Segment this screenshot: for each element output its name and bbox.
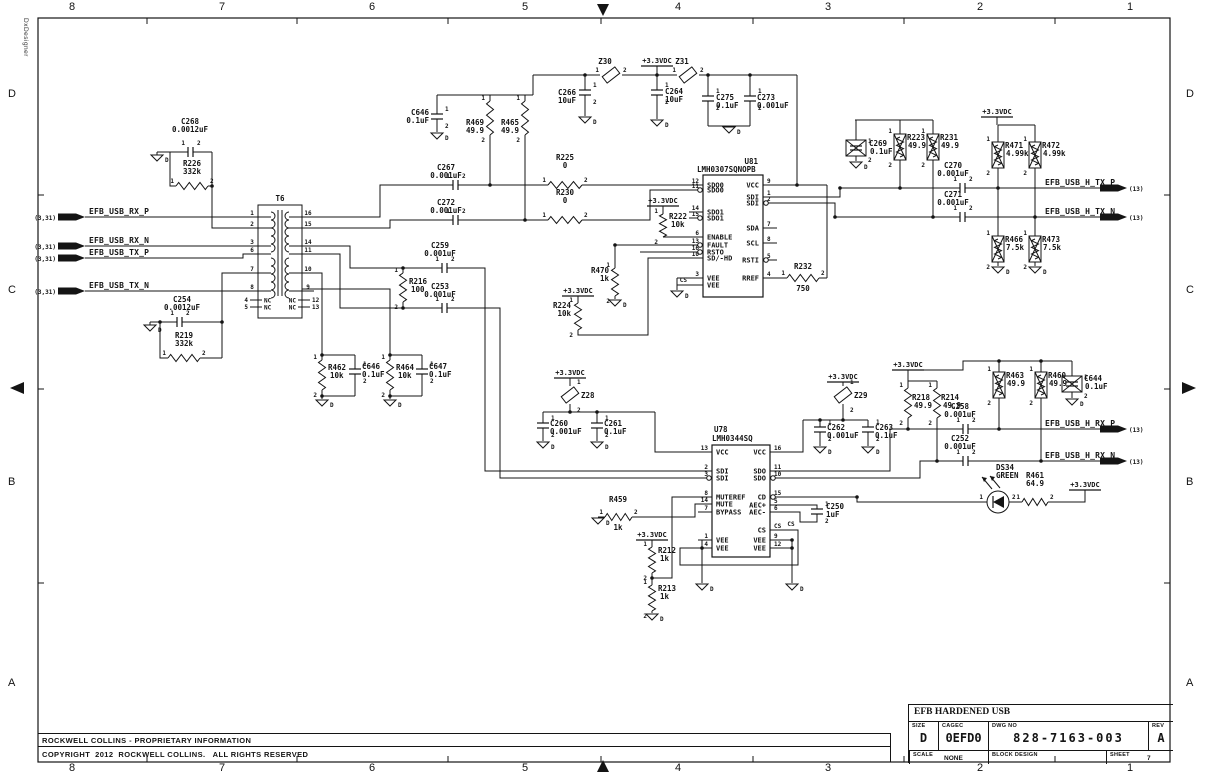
resistor-symbol bbox=[522, 101, 529, 135]
component-value: 0.1uF bbox=[870, 147, 893, 156]
port-sheet-ref: (3,31) bbox=[34, 244, 56, 251]
component-value: 4.99k bbox=[1006, 149, 1029, 158]
pin-marker: 1 bbox=[170, 310, 174, 317]
ground-icon bbox=[723, 127, 735, 133]
pin-marker: 1 bbox=[665, 82, 669, 89]
zone-label: 6 bbox=[369, 1, 375, 13]
ic-pin-number: 10 bbox=[774, 471, 782, 478]
component-value: 0.0012uF bbox=[172, 125, 209, 134]
resistor-symbol bbox=[548, 217, 582, 224]
ground-label: D bbox=[800, 586, 804, 593]
pin-marker: 2 bbox=[928, 420, 932, 427]
component-value: 332k bbox=[183, 167, 202, 176]
ic-pin-number: 5 bbox=[774, 498, 778, 505]
pin-marker: 2 bbox=[700, 67, 704, 74]
junction-dot bbox=[1039, 359, 1043, 363]
ground-icon bbox=[671, 291, 683, 297]
dwg-no-label: DWG NO bbox=[992, 723, 1017, 729]
ic-pin-number: 9 bbox=[767, 178, 771, 185]
pin-marker: 2 bbox=[969, 205, 973, 212]
ic-pin-name: ENABLE bbox=[707, 234, 732, 242]
ic-pin-number: 3 bbox=[704, 471, 708, 478]
cage-label: CAGEC bbox=[942, 723, 963, 729]
ic-pin-name: SDA bbox=[746, 225, 759, 233]
ground-label: D bbox=[605, 444, 609, 451]
component-value: 49.9 bbox=[1049, 379, 1068, 388]
transformer-pin-number: 4 bbox=[244, 297, 248, 304]
zone-label: B bbox=[8, 476, 15, 488]
pin-marker: 2 bbox=[605, 432, 609, 439]
transformer-pin-number: 9 bbox=[306, 284, 310, 291]
transformer-pin-number: 6 bbox=[250, 247, 254, 254]
pin-marker: 1 bbox=[986, 230, 990, 237]
resistor-symbol bbox=[930, 137, 937, 157]
junction-dot bbox=[568, 410, 572, 414]
ground-label: D bbox=[1043, 269, 1047, 276]
component-value: 10k bbox=[330, 371, 344, 380]
port-arrow-icon bbox=[58, 288, 85, 295]
component-value: GREEN bbox=[996, 471, 1019, 480]
ic-pin-number: 15 bbox=[774, 490, 782, 497]
pin-marker: 2 bbox=[481, 137, 485, 144]
schematic-canvas: DDDDDDDDDDDDDDDDDDDDDD+3.3VDC+3.3VDC+3.3… bbox=[0, 0, 1206, 776]
pin-marker: 1 bbox=[953, 205, 957, 212]
wire bbox=[784, 420, 803, 452]
ground-icon bbox=[384, 400, 396, 406]
junction-dot bbox=[838, 186, 842, 190]
ground-icon bbox=[786, 584, 798, 590]
component-value: 332k bbox=[175, 339, 194, 348]
ic-pin-number: 5 bbox=[767, 253, 771, 260]
dwg-no-value: 828-7163-003 bbox=[989, 731, 1148, 745]
component-value: 1k bbox=[660, 554, 670, 563]
zone-label: 2 bbox=[977, 1, 983, 13]
component-value: 49.9 bbox=[501, 126, 520, 135]
resistor-symbol bbox=[905, 388, 912, 418]
wire bbox=[655, 412, 698, 452]
resistor-symbol bbox=[168, 355, 200, 362]
pin-marker: 2 bbox=[569, 332, 573, 339]
wire bbox=[923, 361, 1072, 370]
ground-label: D bbox=[685, 293, 689, 300]
pin-marker: 1 bbox=[979, 494, 983, 501]
pin-marker: 1 bbox=[868, 138, 872, 145]
pin-marker: 1 bbox=[605, 415, 609, 422]
ground-label: D bbox=[876, 449, 880, 456]
component-ref: Z31 bbox=[675, 57, 689, 66]
pin-marker: 1 bbox=[654, 208, 658, 215]
ground-label: D bbox=[593, 119, 597, 126]
footer-divider-mid bbox=[38, 746, 890, 747]
pin-marker: 2 bbox=[551, 432, 555, 439]
ic-pin-number: CS bbox=[774, 523, 782, 530]
junction-dot bbox=[748, 73, 752, 77]
pin-marker: 2 bbox=[654, 239, 658, 246]
transformer-pin-number: 10 bbox=[304, 266, 312, 273]
junction-dot bbox=[935, 459, 939, 463]
ground-label: D bbox=[330, 402, 334, 409]
transformer-pin-number: 12 bbox=[312, 297, 320, 304]
zone-label: D bbox=[1186, 88, 1194, 100]
port-arrow-icon bbox=[1100, 185, 1127, 192]
pin-marker: 1 bbox=[1023, 136, 1027, 143]
pin-marker: 2 bbox=[451, 296, 455, 303]
ground-label: D bbox=[551, 444, 555, 451]
pin-marker: 2 bbox=[850, 407, 854, 414]
resistor-symbol bbox=[575, 303, 582, 330]
ground-icon bbox=[431, 133, 443, 139]
resistor-symbol bbox=[1038, 375, 1045, 395]
ic-pin-number: 11 bbox=[692, 183, 700, 190]
zone-label: C bbox=[8, 284, 16, 296]
dwg-no-cell: DWG NO 828-7163-003 bbox=[988, 722, 1148, 750]
ic-pin-number: 2 bbox=[767, 196, 771, 203]
component-ref: R459 bbox=[609, 495, 628, 504]
ground-icon bbox=[862, 447, 874, 453]
footer-divider-top bbox=[38, 733, 890, 734]
pin-marker: 2 bbox=[313, 392, 317, 399]
ic-pin-name: CD bbox=[758, 494, 766, 502]
pin-marker: 1 bbox=[599, 509, 603, 516]
component-value: 1k bbox=[600, 274, 610, 283]
resistor-symbol bbox=[1022, 499, 1048, 506]
pin-marker: 1 bbox=[394, 267, 398, 274]
pin-marker: 1 bbox=[569, 297, 573, 304]
port-sheet-ref: (13) bbox=[1129, 427, 1143, 434]
pin-marker: 1 bbox=[643, 579, 647, 586]
pin-marker: 1 bbox=[1023, 230, 1027, 237]
pin-marker: 2 bbox=[1023, 170, 1027, 177]
pin-marker: 1 bbox=[643, 541, 647, 548]
resistor-symbol bbox=[612, 268, 619, 296]
port-sheet-ref: (13) bbox=[1129, 215, 1143, 222]
component-value: 750 bbox=[796, 284, 810, 293]
junction-dot bbox=[595, 410, 599, 414]
power-label: +3.3VDC bbox=[555, 369, 585, 377]
ic-pin-number: 11 bbox=[774, 464, 782, 471]
ic-pin-name: VEE bbox=[707, 282, 720, 290]
center-mark-arrow bbox=[1182, 382, 1196, 394]
wire bbox=[302, 220, 453, 228]
ic-pin-number: 15 bbox=[692, 211, 700, 218]
title-block-table: SIZE D CAGEC 0EFD0 DWG NO 828-7163-003 R… bbox=[909, 721, 1173, 764]
resistor-symbol bbox=[660, 214, 667, 237]
resistor-symbol bbox=[487, 101, 494, 135]
ic-pin-name: RSTI bbox=[742, 257, 759, 265]
resistor-symbol bbox=[319, 360, 326, 390]
zone-label: 7 bbox=[219, 1, 225, 13]
ic-pin-number: 4 bbox=[704, 541, 708, 548]
transformer-pin-number: 16 bbox=[304, 210, 312, 217]
junction-dot bbox=[855, 495, 859, 499]
zone-label: B bbox=[1186, 476, 1193, 488]
junction-dot bbox=[931, 215, 935, 219]
size-label: SIZE bbox=[912, 723, 925, 729]
pin-marker: 1 bbox=[577, 379, 581, 386]
pin-marker: 1 bbox=[446, 173, 450, 180]
junction-dot bbox=[583, 73, 587, 77]
component-value: 100 bbox=[411, 285, 425, 294]
resistor-symbol bbox=[1032, 239, 1039, 259]
cs-net-label: CS bbox=[787, 521, 795, 528]
junction-dot bbox=[898, 186, 902, 190]
pin-marker: 2 bbox=[593, 99, 597, 106]
ic-pin-number: 6 bbox=[774, 505, 778, 512]
resistor-symbol bbox=[996, 375, 1003, 395]
ic-pin-number: 8 bbox=[704, 490, 708, 497]
sheet-cell: SHEET 7 bbox=[1106, 750, 1173, 764]
pin-marker: 1 bbox=[593, 82, 597, 89]
junction-dot bbox=[401, 266, 405, 270]
pin-marker: 1 bbox=[987, 366, 991, 373]
resistor-symbol bbox=[1032, 145, 1039, 165]
ic-pin-number: 13 bbox=[701, 445, 709, 452]
pin-marker: 2 bbox=[986, 170, 990, 177]
junction-dot bbox=[906, 427, 910, 431]
wire bbox=[763, 203, 835, 217]
pin-marker: 2 bbox=[888, 162, 892, 169]
junction-dot bbox=[488, 183, 492, 187]
ground-label: D bbox=[398, 402, 402, 409]
pin-marker: 2 bbox=[634, 509, 638, 516]
resistor-symbol bbox=[649, 585, 656, 611]
transformer-pin-number: 11 bbox=[304, 247, 312, 254]
pin-marker: 2 bbox=[394, 304, 398, 311]
transformer-winding bbox=[285, 258, 289, 298]
ground-label: D bbox=[445, 135, 449, 142]
junction-dot bbox=[790, 546, 794, 550]
power-label: +3.3VDC bbox=[637, 531, 667, 539]
drawing-title: EFB HARDENED USB bbox=[914, 707, 1010, 717]
ground-label: D bbox=[864, 164, 868, 171]
size-value: D bbox=[909, 731, 938, 745]
port-arrow-icon bbox=[58, 243, 85, 250]
ferrite-bead-icon bbox=[834, 387, 852, 403]
ground-icon bbox=[144, 325, 156, 331]
component-value: 10k bbox=[671, 220, 685, 229]
port-sheet-ref: (3,31) bbox=[34, 289, 56, 296]
sheet-number: 7 bbox=[1147, 755, 1151, 762]
ground-label: D bbox=[660, 616, 664, 623]
power-label: +3.3VDC bbox=[648, 197, 678, 205]
ic-pin-name: VCC bbox=[716, 449, 729, 457]
port-sheet-ref: (13) bbox=[1129, 186, 1143, 193]
ground-label: D bbox=[158, 327, 162, 334]
resistor-symbol bbox=[787, 275, 819, 282]
pin-marker: 1 bbox=[716, 88, 720, 95]
pin-marker: 2 bbox=[623, 67, 627, 74]
pin-marker: 1 bbox=[542, 177, 546, 184]
ground-label: D bbox=[165, 157, 169, 164]
wire bbox=[302, 246, 442, 268]
ic-pin-name: VEE bbox=[716, 545, 729, 553]
zone-label: 8 bbox=[69, 1, 75, 13]
ground-icon bbox=[151, 155, 163, 161]
transformer-pin-number: 15 bbox=[304, 221, 312, 228]
component-value: 1k bbox=[660, 592, 670, 601]
resistor-symbol bbox=[176, 183, 208, 190]
scale-label: SCALE bbox=[913, 752, 933, 758]
junction-dot bbox=[388, 353, 392, 357]
pin-marker: 1 bbox=[551, 415, 555, 422]
resistor-symbol bbox=[897, 137, 904, 157]
zone-label: D bbox=[8, 88, 16, 100]
footer-divider-right bbox=[890, 733, 891, 762]
nc-label: NC bbox=[289, 305, 297, 312]
pin-marker: 1 bbox=[170, 178, 174, 185]
transformer-winding bbox=[271, 212, 275, 252]
pin-marker: 1 bbox=[781, 270, 785, 277]
zone-label: 5 bbox=[522, 1, 528, 13]
ic-pin-name: SDO bbox=[753, 475, 766, 483]
component-value: 7.5k bbox=[1043, 243, 1062, 252]
ground-icon bbox=[609, 300, 621, 306]
component-value: 1k bbox=[613, 523, 623, 532]
wire bbox=[632, 504, 698, 517]
ground-icon bbox=[579, 117, 591, 123]
transformer-pin-number: 2 bbox=[250, 221, 254, 228]
component-value: 0.1uF bbox=[406, 116, 429, 125]
port-arrow-icon bbox=[58, 214, 85, 221]
pin-marker: 2 bbox=[969, 176, 973, 183]
pin-marker: 1 bbox=[986, 136, 990, 143]
title-block: EFB HARDENED USB SIZE D CAGEC 0EFD0 DWG … bbox=[908, 704, 1173, 763]
ic-pin-number: 2 bbox=[704, 464, 708, 471]
ground-label: D bbox=[623, 302, 627, 309]
ic-pin-number: 8 bbox=[767, 236, 771, 243]
junction-dot bbox=[650, 576, 654, 580]
rev-cell: REV A bbox=[1148, 722, 1173, 750]
pin-marker: 2 bbox=[972, 417, 976, 424]
ic-part-number: LMH0307SQNOPB bbox=[697, 165, 756, 174]
component-value: 49.9 bbox=[908, 141, 927, 150]
pin-marker: 2 bbox=[986, 264, 990, 271]
zone-label: C bbox=[1186, 284, 1194, 296]
pin-marker: 2 bbox=[825, 518, 829, 525]
pin-marker: 1 bbox=[181, 140, 185, 147]
junction-dot bbox=[320, 394, 324, 398]
pin-marker: 2 bbox=[202, 350, 206, 357]
pin-marker: 1 bbox=[363, 361, 367, 368]
ground-label: D bbox=[828, 449, 832, 456]
pin-marker: 2 bbox=[197, 140, 201, 147]
schematic-page: { "app": {"vertical_label": "DxDesigner"… bbox=[0, 0, 1206, 776]
component-value: 0.001uF bbox=[827, 431, 859, 440]
power-label: +3.3VDC bbox=[642, 57, 672, 65]
port-sheet-ref: (3,31) bbox=[34, 256, 56, 263]
transformer-pin-number: 1 bbox=[250, 210, 254, 217]
pin-marker: 1 bbox=[1084, 374, 1088, 381]
pin-marker: 2 bbox=[445, 123, 449, 130]
ground-icon bbox=[646, 614, 658, 620]
pin-marker: 1 bbox=[516, 95, 520, 102]
scale-value: NONE bbox=[944, 755, 963, 762]
junction-dot bbox=[388, 394, 392, 398]
component-value: 10uF bbox=[558, 96, 577, 105]
component-value: 0.001uF bbox=[550, 427, 582, 436]
pin-marker: 1 bbox=[828, 419, 832, 426]
transformer-winding bbox=[285, 212, 289, 252]
transformer-pin-number: 8 bbox=[250, 284, 254, 291]
junction-dot bbox=[220, 320, 224, 324]
component-value: 0 bbox=[563, 196, 568, 205]
ground-icon bbox=[1029, 267, 1041, 273]
pin-marker: 2 bbox=[210, 178, 214, 185]
pin-marker: 2 bbox=[606, 298, 610, 305]
component-ref: R232 bbox=[794, 262, 812, 271]
port-arrow-icon bbox=[1100, 214, 1127, 221]
junction-dot bbox=[795, 183, 799, 187]
pin-marker: 2 bbox=[186, 310, 190, 317]
cs-net-label: CS bbox=[680, 277, 688, 284]
pin-marker: 2 bbox=[876, 436, 880, 443]
ic-pin-number: 9 bbox=[774, 533, 778, 540]
resistor-symbol bbox=[995, 239, 1002, 259]
power-label: +3.3VDC bbox=[982, 108, 1012, 116]
copyright-text: COPYRIGHT 2012 ROCKWELL COLLINS. ALL RIG… bbox=[42, 750, 308, 759]
ground-label: D bbox=[1006, 269, 1010, 276]
zone-label: 3 bbox=[825, 762, 831, 774]
pin-marker: 2 bbox=[665, 99, 669, 106]
ferrite-bead-icon bbox=[602, 67, 620, 83]
pin-marker: 2 bbox=[899, 420, 903, 427]
pin-marker: 2 bbox=[921, 162, 925, 169]
rev-label: REV bbox=[1152, 723, 1164, 729]
ic-pin-name: CS bbox=[758, 527, 766, 535]
pin-marker: 1 bbox=[430, 361, 434, 368]
component-value: 7.5k bbox=[1006, 243, 1025, 252]
ground-label: D bbox=[665, 122, 669, 129]
zone-label: A bbox=[1186, 677, 1193, 689]
component-value: 0.001uF bbox=[757, 101, 789, 110]
pin-marker: 1 bbox=[850, 379, 854, 386]
junction-dot bbox=[706, 73, 710, 77]
ic-pin-name: VEE bbox=[753, 545, 766, 553]
component-value: 10k bbox=[398, 371, 412, 380]
component-value: 49.9 bbox=[914, 401, 933, 410]
scale-cell: SCALE NONE bbox=[909, 750, 988, 764]
junction-dot bbox=[1033, 215, 1037, 219]
component-ref: Z28 bbox=[581, 391, 595, 400]
pin-marker: 1 bbox=[888, 128, 892, 135]
pin-marker: 1 bbox=[435, 296, 439, 303]
ground-icon bbox=[1066, 399, 1078, 405]
ic-part-number: LMH0344SQ bbox=[712, 434, 753, 443]
sheet-label: SHEET bbox=[1110, 752, 1130, 758]
wire bbox=[784, 429, 963, 471]
ground-icon bbox=[537, 442, 549, 448]
junction-dot bbox=[790, 538, 794, 542]
ic-pin-name: SDI bbox=[716, 475, 729, 483]
ic-ref: U78 bbox=[714, 425, 728, 434]
led-diode-icon bbox=[993, 496, 1004, 508]
app-vertical-label: DxDesigner bbox=[22, 18, 29, 57]
zone-label: 7 bbox=[219, 762, 225, 774]
junction-dot bbox=[320, 353, 324, 357]
ic-pin-name: MUTE bbox=[716, 501, 733, 509]
component-value: 4.99k bbox=[1043, 149, 1066, 158]
transformer-pin-number: 5 bbox=[244, 304, 248, 311]
ground-icon bbox=[591, 442, 603, 448]
ic-pin-number: 3 bbox=[695, 271, 699, 278]
pin-marker: 2 bbox=[868, 157, 872, 164]
component-value: 10k bbox=[557, 309, 571, 318]
pin-marker: 1 bbox=[899, 382, 903, 389]
transformer-pin-number: 3 bbox=[250, 239, 254, 246]
ic-pin-number: 1 bbox=[704, 533, 708, 540]
ic-pin-number: 14 bbox=[701, 497, 709, 504]
ground-icon bbox=[316, 400, 328, 406]
